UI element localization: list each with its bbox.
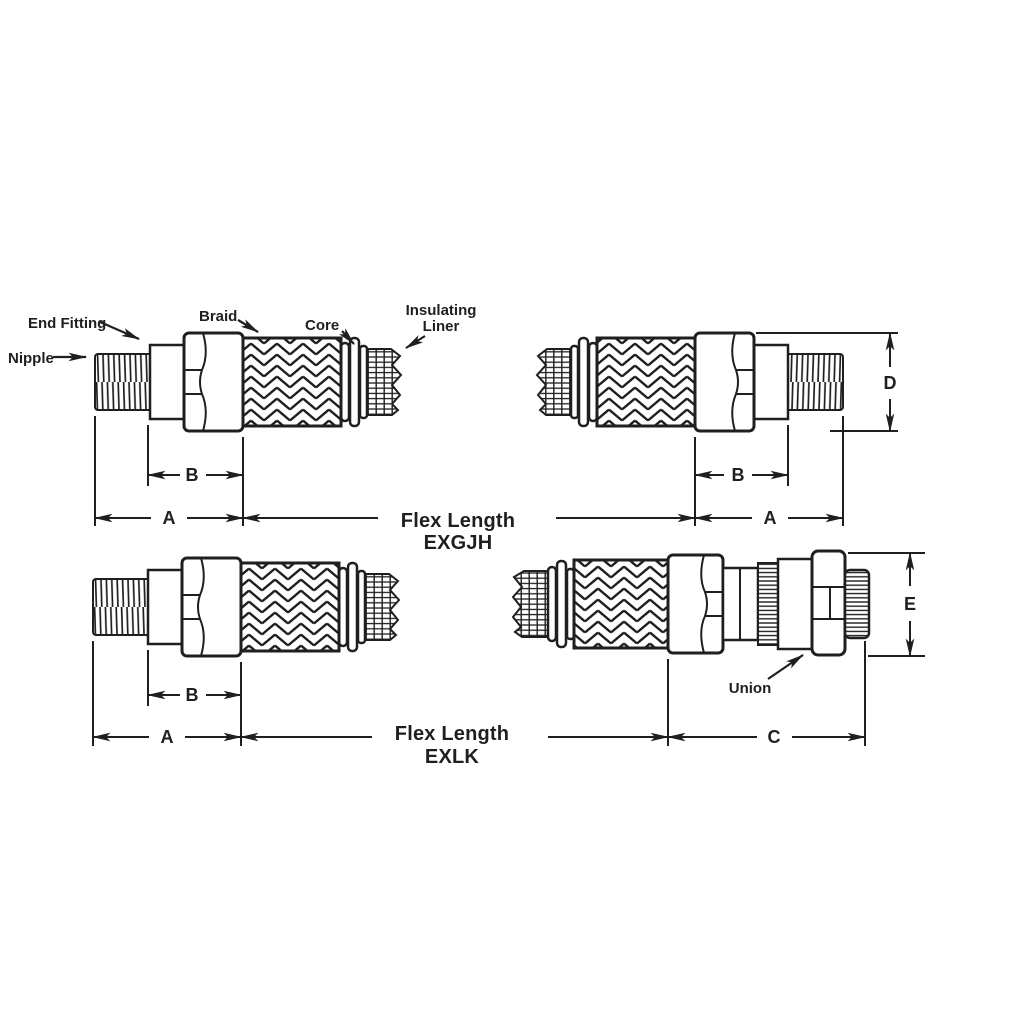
insulating-liner-label-line2: Liner <box>423 318 460 335</box>
braid-leader-arrow <box>238 320 258 332</box>
dim-a-label: A <box>161 727 174 747</box>
dims-exgjh-left: B A <box>95 416 243 528</box>
dim-c-label: C <box>768 727 781 747</box>
union-label: Union <box>729 680 772 697</box>
core-label: Core <box>305 317 339 334</box>
dim-a-label: A <box>764 508 777 528</box>
callout-end-fitting: End Fitting <box>28 315 139 339</box>
union-hex-nut <box>812 551 845 655</box>
union-body <box>778 559 812 649</box>
threaded-end <box>845 570 869 638</box>
callout-union: Union <box>729 655 803 697</box>
end-fitting-nut <box>668 555 723 653</box>
coupling-exgjh-left <box>95 333 401 431</box>
union-leader-arrow <box>768 655 803 679</box>
insulating-liner-leader-arrow <box>406 336 425 348</box>
dim-b-label: B <box>186 465 199 485</box>
coupling-exlk-left <box>93 558 399 656</box>
union-neck <box>723 568 758 640</box>
callout-braid: Braid <box>199 308 258 332</box>
callout-nipple: Nipple <box>8 350 86 367</box>
flex-length-title: Flex Length <box>401 510 515 532</box>
model-exlk: EXLK <box>425 746 479 768</box>
nipple-label: Nipple <box>8 350 54 367</box>
braid-label: Braid <box>199 308 237 325</box>
end-fitting-label: End Fitting <box>28 315 106 332</box>
insulating-liner <box>513 571 548 637</box>
flex-length-exgjh: Flex Length EXGJH <box>243 510 695 554</box>
dim-e-label: E <box>904 594 916 614</box>
insulating-liner-label-line1: Insulating <box>406 302 477 319</box>
coupling-exgjh-right <box>537 333 843 431</box>
dim-d-label: D <box>884 373 897 393</box>
core-rings <box>548 561 574 647</box>
callout-insulating-liner: Insulating Liner <box>406 302 477 348</box>
union-knurled-ring <box>758 563 778 645</box>
catalog-page: End Fitting Nipple Braid Core Insulating… <box>0 0 1024 1024</box>
flex-length-title: Flex Length <box>395 723 509 745</box>
technical-drawing: End Fitting Nipple Braid Core Insulating… <box>0 0 1024 1024</box>
dim-a-label: A <box>163 508 176 528</box>
dim-b-label: B <box>732 465 745 485</box>
model-exgjh: EXGJH <box>424 532 493 554</box>
coupling-exlk-right <box>513 551 869 655</box>
braid <box>574 560 668 648</box>
dim-b-label: B <box>186 685 199 705</box>
flex-length-exlk: Flex Length EXLK <box>241 723 668 768</box>
